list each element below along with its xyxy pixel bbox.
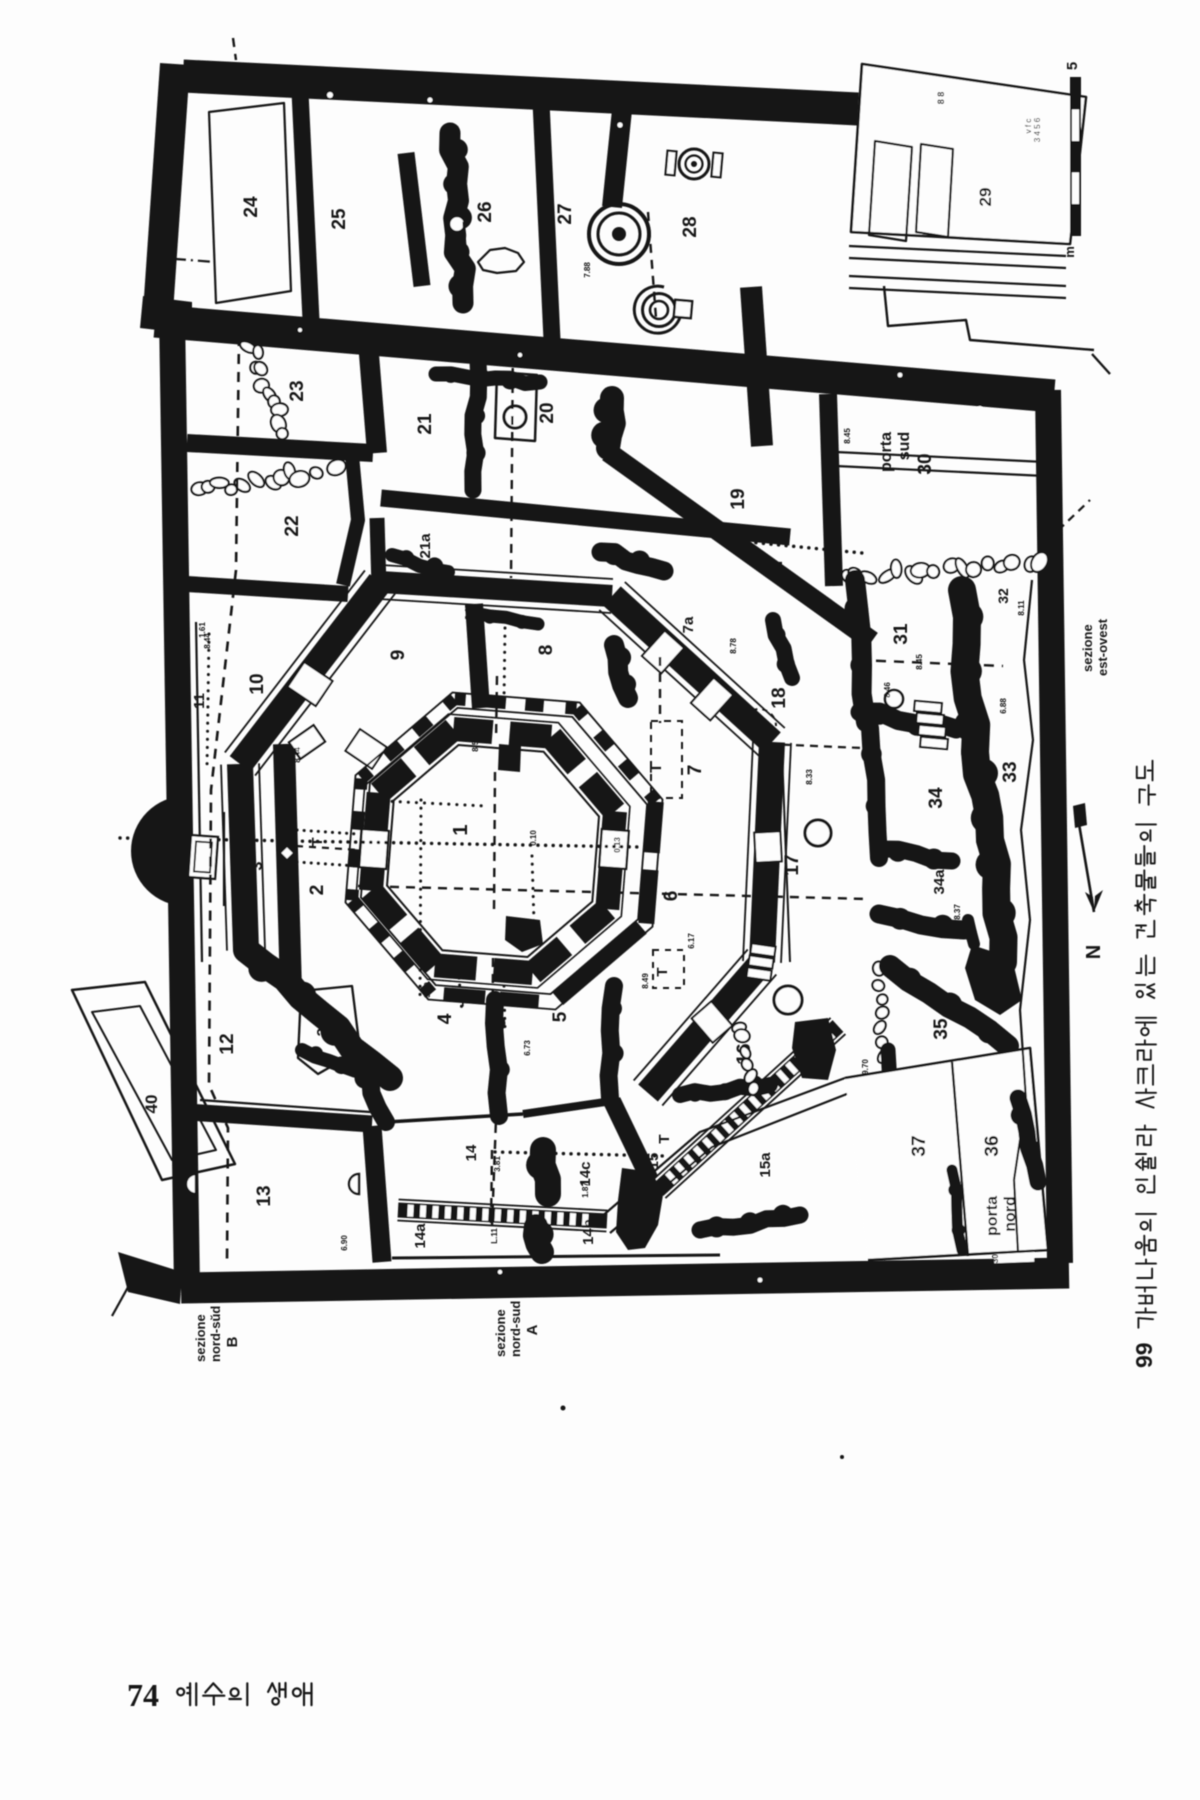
svg-text:sezione: sezione [193, 1314, 208, 1362]
svg-text:1: 1 [450, 824, 472, 835]
svg-text:32: 32 [995, 588, 1011, 604]
svg-text:T: T [309, 837, 326, 846]
svg-text:8.44: 8.44 [293, 747, 302, 763]
svg-text:8.55: 8.55 [471, 736, 480, 752]
svg-text:21: 21 [415, 413, 436, 435]
svg-text:34: 34 [926, 787, 947, 809]
svg-text:24: 24 [241, 196, 262, 218]
svg-text:18: 18 [769, 687, 790, 708]
svg-text:29: 29 [976, 188, 995, 207]
svg-text:17: 17 [782, 854, 803, 875]
svg-text:28: 28 [680, 216, 701, 237]
svg-text:8.78: 8.78 [729, 638, 738, 654]
svg-text:33: 33 [1000, 761, 1021, 782]
svg-text:nord-sŭd: nord-sŭd [208, 1306, 223, 1362]
svg-text:30: 30 [915, 453, 936, 474]
svg-text:27: 27 [555, 203, 576, 224]
svg-text:8.11: 8.11 [1001, 856, 1010, 872]
svg-text:11: 11 [191, 693, 208, 709]
svg-text:3: 3 [249, 861, 266, 870]
svg-text:8.46: 8.46 [883, 682, 892, 698]
svg-text:2: 2 [307, 885, 328, 896]
svg-text:22: 22 [282, 515, 303, 536]
svg-text:37: 37 [909, 1135, 930, 1156]
svg-text:N: N [1083, 945, 1105, 959]
svg-text:21a: 21a [417, 533, 434, 559]
svg-text:7a: 7a [680, 616, 697, 633]
svg-text:3.81: 3.81 [493, 1156, 502, 1172]
svg-text:8.45: 8.45 [843, 428, 852, 444]
svg-text:23: 23 [287, 380, 308, 401]
svg-text:14b: 14b [580, 1219, 597, 1245]
svg-text:13: 13 [254, 1185, 275, 1206]
svg-text:A: A [524, 1324, 541, 1335]
svg-text:1.87: 1.87 [581, 1182, 590, 1198]
svg-text:8.11: 8.11 [759, 422, 768, 438]
svg-text:1.30: 1.30 [991, 1254, 1000, 1270]
svg-text:est-ovest: est-ovest [1095, 618, 1110, 676]
svg-text:sud: sud [896, 432, 913, 460]
svg-text:T: T [648, 763, 665, 773]
svg-text:8 8: 8 8 [936, 92, 946, 105]
svg-text:3.19: 3.19 [423, 982, 432, 998]
svg-text:8.49: 8.49 [641, 973, 650, 989]
svg-text:9.70: 9.70 [861, 1059, 870, 1075]
svg-text:6.90: 6.90 [340, 1235, 349, 1251]
svg-text:0.13: 0.13 [613, 837, 622, 853]
svg-text:3 4 5 6: 3 4 5 6 [1033, 117, 1042, 142]
svg-text:9: 9 [388, 650, 409, 661]
svg-text:8.37: 8.37 [953, 904, 962, 920]
svg-text:8.46: 8.46 [464, 604, 473, 620]
svg-text:25: 25 [329, 208, 350, 230]
svg-text:sezione: sezione [1080, 624, 1095, 672]
svg-text:26: 26 [475, 201, 496, 222]
svg-text:T: T [656, 1134, 673, 1143]
svg-text:porta: porta [984, 1196, 1001, 1236]
svg-text:12: 12 [217, 1033, 238, 1054]
svg-text:5: 5 [1064, 62, 1081, 70]
svg-text:74: 74 [127, 1677, 159, 1713]
svg-text:8.33: 8.33 [805, 769, 814, 785]
svg-text:v f c: v f c [1024, 119, 1033, 134]
svg-text:99: 99 [1131, 1342, 1157, 1368]
svg-text:8.47: 8.47 [805, 1034, 814, 1050]
svg-text:7.88: 7.88 [583, 262, 592, 278]
svg-text:L.11: L.11 [490, 1228, 499, 1244]
svg-text:1.61: 1.61 [198, 622, 207, 638]
svg-text:8.45: 8.45 [915, 654, 924, 670]
svg-text:10: 10 [247, 673, 268, 694]
svg-text:8: 8 [536, 645, 557, 656]
svg-text:T: T [654, 967, 671, 976]
svg-text:6.79: 6.79 [626, 682, 635, 698]
svg-text:T: T [470, 658, 487, 668]
svg-text:20: 20 [537, 402, 558, 423]
svg-text:B: B [224, 1336, 241, 1347]
svg-text:7: 7 [685, 765, 706, 776]
svg-text:nord-sud: nord-sud [508, 1301, 523, 1357]
svg-text:sezione: sezione [493, 1309, 508, 1357]
svg-text:35: 35 [931, 1018, 952, 1040]
svg-text:m: m [1062, 246, 1077, 258]
svg-text:6.73: 6.73 [523, 1040, 532, 1056]
svg-text:31: 31 [891, 623, 912, 645]
svg-text:14: 14 [463, 1144, 480, 1161]
svg-text:T: T [459, 997, 476, 1006]
svg-text:8.11: 8.11 [1017, 600, 1026, 616]
svg-text:2a: 2a [314, 1019, 331, 1036]
svg-text:14a: 14a [412, 1223, 429, 1249]
svg-text:36: 36 [982, 1135, 1003, 1156]
svg-text:5: 5 [550, 1011, 571, 1022]
svg-text:6: 6 [661, 891, 682, 902]
svg-text:6.17: 6.17 [687, 933, 696, 949]
svg-text:4: 4 [435, 1013, 456, 1024]
svg-text:15a: 15a [757, 1152, 774, 1178]
svg-text:34a: 34a [931, 869, 948, 895]
svg-text:6.88: 6.88 [999, 698, 1008, 714]
svg-text:19: 19 [728, 488, 749, 509]
svg-text:0.10: 0.10 [529, 830, 538, 846]
svg-text:T: T [769, 558, 786, 568]
svg-text:porta: porta [878, 432, 895, 472]
